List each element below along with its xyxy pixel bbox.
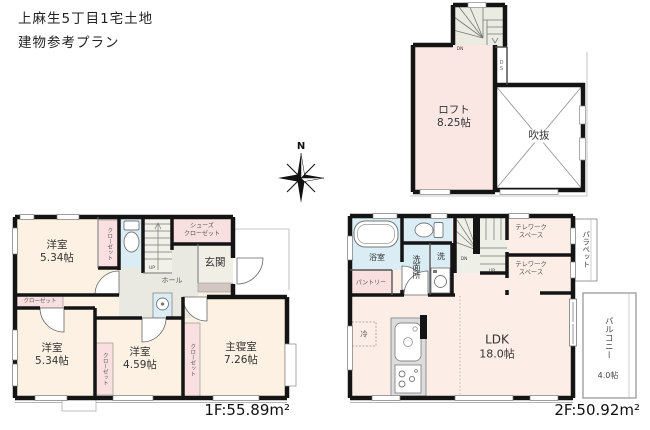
telework1-label: テレワーク スペース	[515, 224, 546, 240]
closet-nw-label: クローゼット	[106, 228, 112, 261]
master-bedroom-label: 主寝室 7.26帖	[224, 341, 258, 367]
page-subtitle: 建物参考プラン	[18, 31, 120, 51]
fridge-label: 冷	[360, 329, 368, 338]
balcony-label: バルコニー	[604, 317, 613, 360]
up-label-2f: UP	[489, 269, 495, 275]
parapet-label: パラペット	[582, 230, 590, 268]
floorplan-drawing	[0, 0, 650, 430]
floorplan-page: 上麻生5丁目1宅土地 建物参考プラン N ロフト 8.25帖 吹抜 DS DN …	[0, 0, 650, 430]
bedroom-nw-label: 洋室 5.34帖	[40, 239, 74, 265]
up-label-1f: UP	[149, 266, 155, 272]
ldk-label: LDK 18.0帖	[479, 333, 515, 362]
entrance-label: 玄関	[205, 256, 226, 269]
closet-w-label: クローゼット	[23, 299, 56, 306]
void-label: 吹抜	[527, 129, 552, 142]
toilet-2f-icon	[415, 223, 443, 238]
loft-plan	[410, 3, 587, 197]
loft-room-label: ロフト 8.25帖	[437, 104, 471, 130]
floor1-area-label: 1F:55.89m²	[160, 401, 290, 419]
toilet-1f-icon	[124, 221, 139, 252]
dn-label-2f: DN	[461, 257, 468, 263]
laundry-label: 洗	[437, 252, 445, 262]
bathtub-icon	[354, 221, 398, 247]
pantry-label: パントリー	[356, 279, 386, 287]
bath-label: 浴室	[369, 253, 385, 263]
balcony-size-label: 4.0帖	[598, 371, 619, 381]
floor2-plan	[348, 214, 637, 403]
duct-label: DS	[499, 60, 504, 72]
closet-s-label: クローゼット	[101, 353, 107, 386]
compass-rose	[278, 153, 324, 203]
washer-icon	[431, 268, 450, 293]
hall-label: ホール	[162, 277, 183, 286]
floor2-area-label: 2F:50.92m²	[510, 401, 640, 419]
washroom-label: 洗面所	[412, 255, 420, 279]
washbasin-icon	[157, 298, 169, 310]
closet-master-label: クローゼット	[189, 344, 195, 377]
compass-north-label: N	[297, 141, 305, 154]
page-title: 上麻生5丁目1宅土地	[18, 7, 153, 27]
bedroom-sw-label: 洋室 5.34帖	[35, 342, 69, 368]
telework2-label: テレワーク スペース	[515, 261, 546, 277]
shoes-closet-label: シューズ クローゼット	[184, 223, 220, 238]
loft-dn-label: DN	[457, 47, 464, 53]
bedroom-s-label: 洋室 4.59帖	[123, 346, 157, 372]
